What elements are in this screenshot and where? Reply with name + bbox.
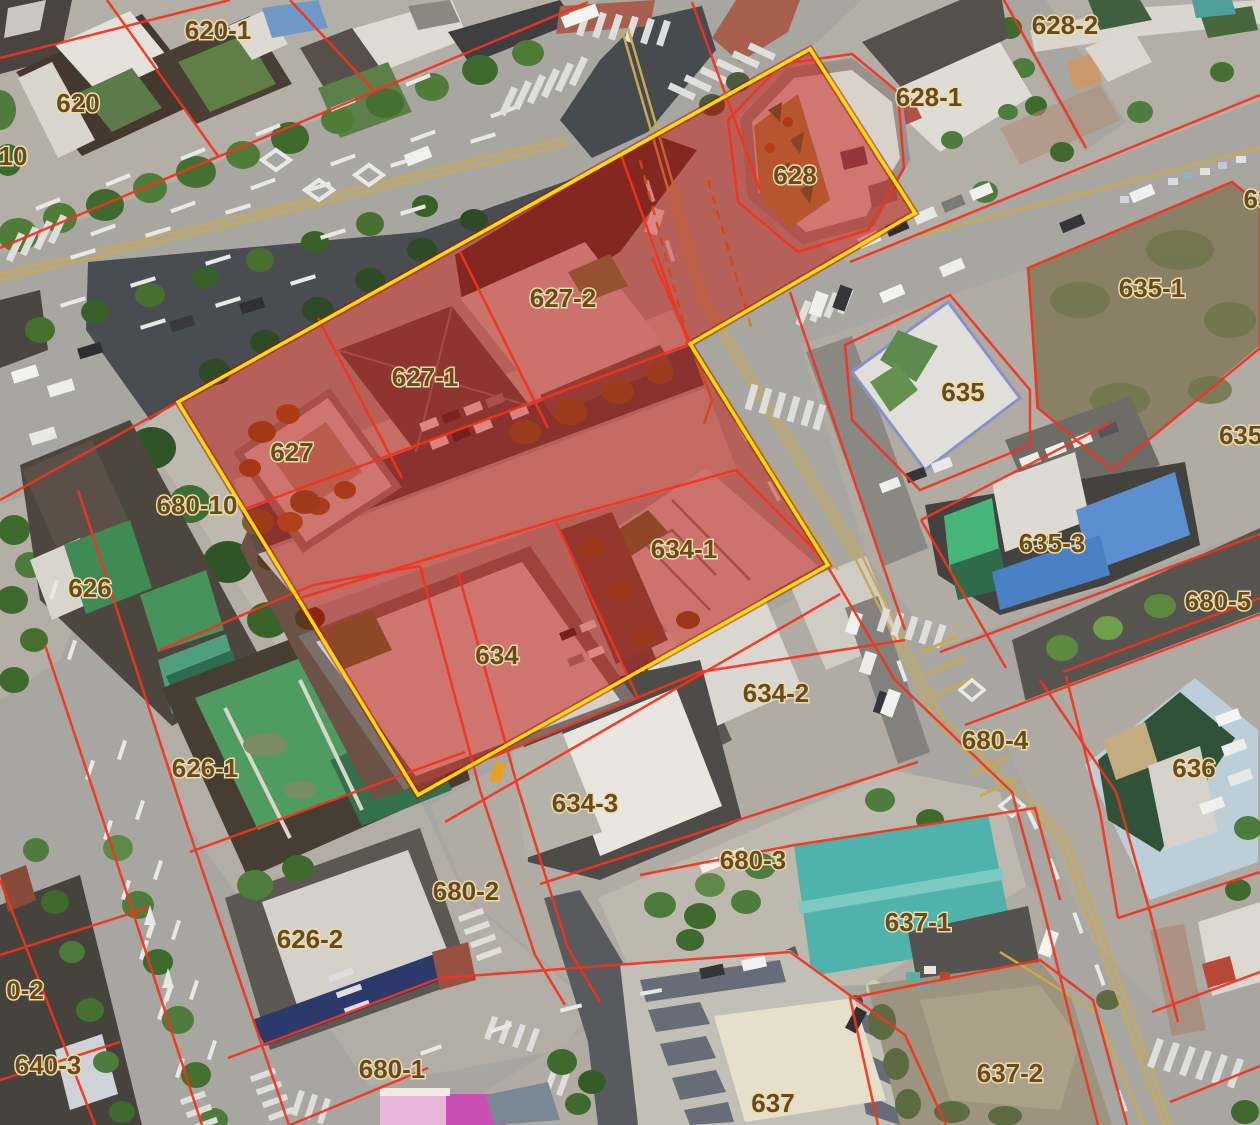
svg-text:626-1: 626-1 (172, 753, 239, 783)
svg-text:640-3: 640-3 (15, 1050, 82, 1080)
svg-text:637-2: 637-2 (977, 1058, 1044, 1088)
svg-text:628-2: 628-2 (1032, 10, 1099, 40)
svg-text:634: 634 (475, 640, 519, 670)
svg-text:634-3: 634-3 (552, 788, 619, 818)
svg-text:635-: 635- (1219, 420, 1260, 450)
svg-text:680-3: 680-3 (720, 845, 787, 875)
svg-text:634-1: 634-1 (651, 534, 718, 564)
svg-text:637-1: 637-1 (885, 907, 952, 937)
svg-text:636: 636 (1172, 753, 1215, 783)
svg-text:626: 626 (68, 573, 111, 603)
svg-text:10: 10 (0, 141, 27, 171)
svg-text:627-1: 627-1 (392, 362, 459, 392)
svg-text:634-2: 634-2 (743, 678, 810, 708)
svg-text:626-2: 626-2 (277, 924, 344, 954)
svg-text:680-4: 680-4 (962, 725, 1029, 755)
svg-text:635-1: 635-1 (1119, 273, 1186, 303)
svg-text:635-3: 635-3 (1019, 528, 1086, 558)
svg-text:635: 635 (941, 377, 984, 407)
svg-text:628-1: 628-1 (896, 82, 963, 112)
svg-text:620: 620 (56, 88, 99, 118)
svg-text:63: 63 (1244, 184, 1260, 214)
svg-text:680-1: 680-1 (359, 1054, 426, 1084)
svg-text:680-10: 680-10 (157, 490, 238, 520)
svg-text:627: 627 (270, 437, 313, 467)
svg-text:0-2: 0-2 (6, 975, 44, 1005)
svg-text:628: 628 (773, 160, 816, 190)
svg-text:680-5: 680-5 (1185, 586, 1252, 616)
svg-text:637: 637 (751, 1088, 794, 1118)
svg-text:680-2: 680-2 (433, 876, 500, 906)
svg-text:627-2: 627-2 (530, 283, 597, 313)
svg-text:620-1: 620-1 (185, 15, 252, 45)
